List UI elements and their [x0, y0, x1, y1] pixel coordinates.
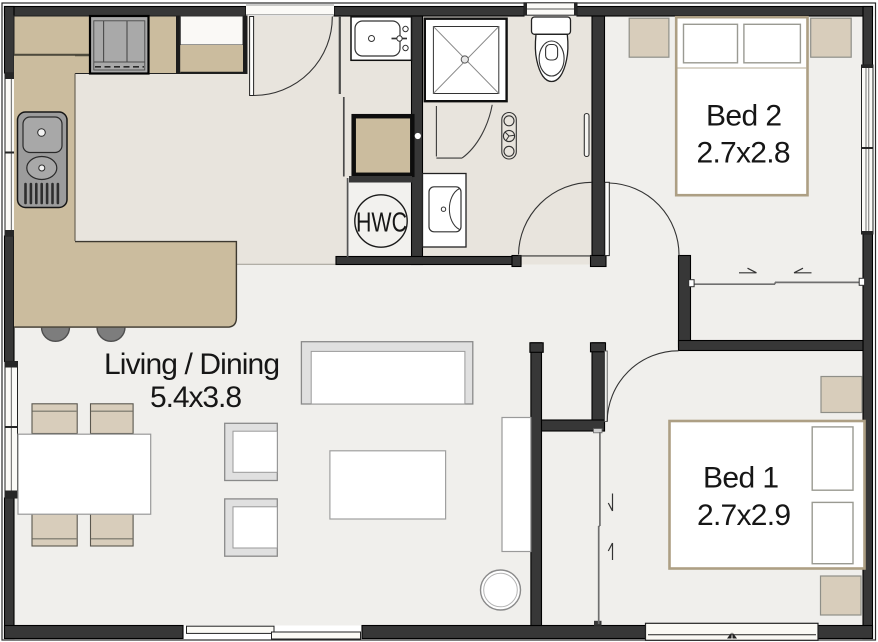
svg-text:Bed 1: Bed 1 — [703, 462, 779, 495]
svg-text:Bed 2: Bed 2 — [706, 100, 782, 133]
svg-text:Living / Dining: Living / Dining — [104, 348, 280, 381]
svg-text:HWC: HWC — [356, 207, 407, 238]
svg-text:2.7x2.8: 2.7x2.8 — [697, 137, 791, 170]
svg-text:2.7x2.9: 2.7x2.9 — [697, 499, 791, 532]
svg-text:5.4x3.8: 5.4x3.8 — [150, 381, 242, 414]
